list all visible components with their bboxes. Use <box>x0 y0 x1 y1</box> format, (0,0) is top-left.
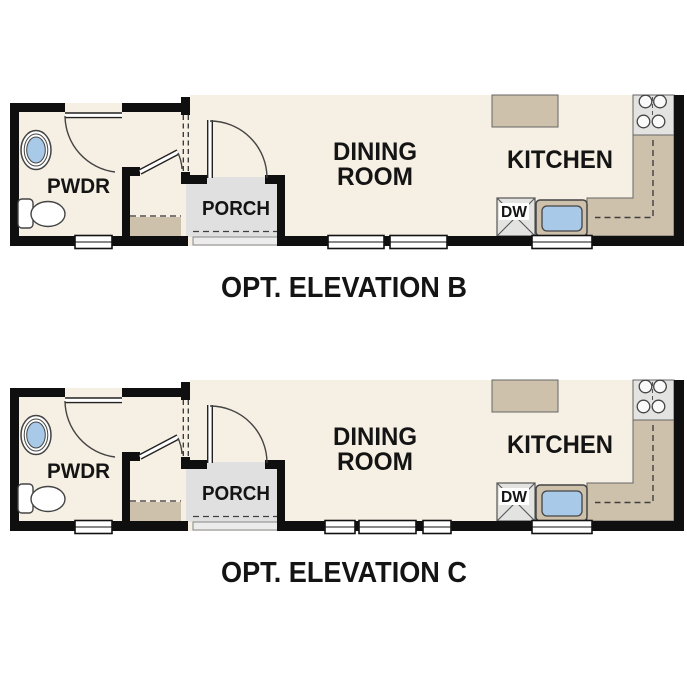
room-label-porch: PORCH <box>202 483 270 505</box>
cooktop-burner-icon <box>654 380 667 393</box>
dishwasher-label: DW <box>501 489 528 506</box>
room-label-dining-line1: DINING <box>333 138 417 166</box>
cooktop-burner-icon <box>639 95 652 108</box>
room-label-powder: PWDR <box>47 175 110 198</box>
floor-plan-sheet: DWPWDRPORCHDININGROOMKITCHENOPT. ELEVATI… <box>0 0 687 687</box>
floor-plan-elevation-c: DWPWDRPORCHDININGROOMKITCHENOPT. ELEVATI… <box>10 380 684 589</box>
porch-step <box>193 522 281 530</box>
toilet-icon <box>31 487 65 512</box>
cooktop-burner-icon <box>639 380 652 393</box>
plan-caption: OPT. ELEVATION B <box>221 272 467 304</box>
floor-plans-canvas: DWPWDRPORCHDININGROOMKITCHENOPT. ELEVATI… <box>0 0 687 687</box>
room-label-kitchen: KITCHEN <box>507 431 613 459</box>
room-label-porch: PORCH <box>202 198 270 220</box>
vanity-sink-basin <box>27 422 46 448</box>
cooktop-burner-icon <box>637 115 650 128</box>
kitchen-sink-basin <box>542 206 582 231</box>
kitchen-island <box>492 380 558 412</box>
room-label-dining-line2: ROOM <box>337 448 413 476</box>
cooktop-burner-icon <box>637 400 650 413</box>
kitchen-island <box>492 95 558 127</box>
room-label-dining-line2: ROOM <box>337 163 413 191</box>
room-label-dining-line1: DINING <box>333 423 417 451</box>
dishwasher-label: DW <box>501 204 528 221</box>
cooktop-burner-icon <box>652 400 665 413</box>
porch-step <box>193 237 281 245</box>
cooktop-burner-icon <box>652 115 665 128</box>
kitchen-sink-basin <box>542 491 582 516</box>
toilet-icon <box>31 202 65 227</box>
vanity-sink-basin <box>27 137 46 163</box>
room-label-powder: PWDR <box>47 460 110 483</box>
room-label-kitchen: KITCHEN <box>507 146 613 174</box>
plan-caption: OPT. ELEVATION C <box>221 557 467 589</box>
floor-plan-elevation-b: DWPWDRPORCHDININGROOMKITCHENOPT. ELEVATI… <box>10 95 684 304</box>
hall-floor-inset <box>130 502 181 521</box>
cooktop-burner-icon <box>654 95 667 108</box>
hall-floor-inset <box>130 217 181 236</box>
